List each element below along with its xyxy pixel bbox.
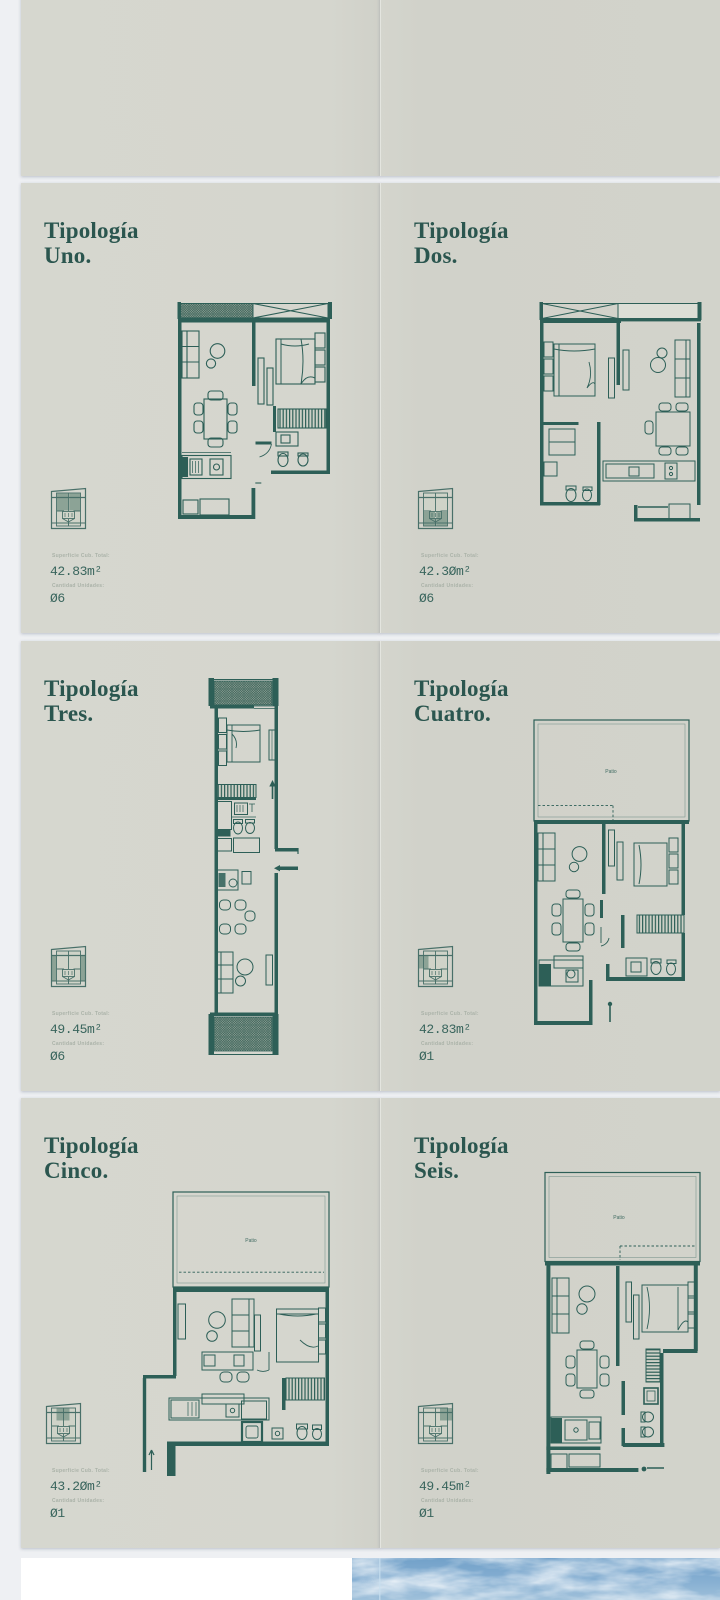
svg-text:Patio: Patio [605, 769, 617, 775]
svg-text:Patio: Patio [245, 1238, 257, 1244]
svg-text:Patio: Patio [613, 1215, 625, 1221]
